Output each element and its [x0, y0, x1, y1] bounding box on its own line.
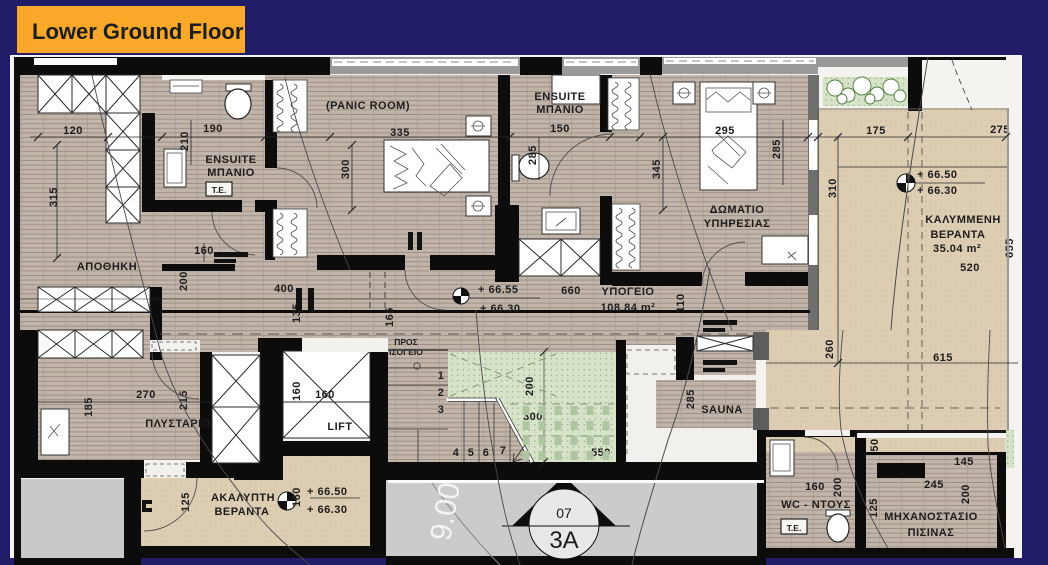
svg-text:T.E.: T.E.	[212, 185, 227, 195]
svg-text:145: 145	[954, 456, 974, 468]
svg-text:ΒΕΡΑΝΤΑ: ΒΕΡΑΝΤΑ	[214, 506, 269, 518]
svg-text:160: 160	[805, 481, 825, 493]
svg-text:ENSUITE: ENSUITE	[205, 154, 256, 166]
svg-text:ΙΣΟΓΕΙΟ: ΙΣΟΓΕΙΟ	[389, 347, 423, 357]
svg-text:285: 285	[527, 145, 539, 165]
svg-text:+ 66.30: + 66.30	[307, 504, 348, 516]
svg-text:ΔΩΜΑΤΙΟ: ΔΩΜΑΤΙΟ	[710, 204, 765, 216]
svg-text:+ 66.30: + 66.30	[480, 303, 521, 315]
svg-text:210: 210	[179, 131, 191, 151]
svg-text:ΑΠΟΘΗΚΗ: ΑΠΟΘΗΚΗ	[77, 261, 137, 273]
svg-text:+ 66.50: + 66.50	[917, 169, 958, 181]
svg-text:400: 400	[274, 283, 294, 295]
svg-text:270: 270	[136, 389, 156, 401]
svg-text:5: 5	[468, 447, 475, 459]
svg-text:ΥΠΗΡΕΣΙΑΣ: ΥΠΗΡΕΣΙΑΣ	[704, 218, 771, 230]
svg-text:160: 160	[291, 487, 303, 507]
svg-text:LIFT: LIFT	[327, 421, 352, 433]
svg-text:125: 125	[180, 492, 192, 512]
svg-text:ENSUITE: ENSUITE	[534, 91, 585, 103]
svg-text:110: 110	[675, 293, 687, 312]
svg-text:310: 310	[827, 178, 839, 198]
svg-text:300: 300	[340, 159, 352, 179]
svg-text:ΠΙΣΙΝΑΣ: ΠΙΣΙΝΑΣ	[908, 527, 955, 539]
svg-text:(PANIC ROOM): (PANIC ROOM)	[326, 100, 410, 112]
svg-text:160: 160	[194, 245, 214, 257]
svg-text:ΜΠΑΝΙΟ: ΜΠΑΝΙΟ	[536, 104, 584, 116]
svg-text:160: 160	[315, 389, 335, 401]
svg-text:ΠΛΥΣΤΑΡΙΟ: ΠΛΥΣΤΑΡΙΟ	[145, 418, 211, 430]
svg-text:35.04 m²: 35.04 m²	[933, 243, 981, 255]
svg-text:1: 1	[438, 370, 445, 382]
svg-text:108.84 m²: 108.84 m²	[601, 302, 656, 314]
svg-text:200: 200	[178, 271, 190, 291]
svg-text:ΒΕΡΑΝΤΑ: ΒΕΡΑΝΤΑ	[930, 229, 985, 241]
svg-text:175: 175	[866, 125, 886, 137]
svg-text:07: 07	[556, 505, 572, 521]
svg-text:3A: 3A	[549, 527, 578, 554]
svg-text:ΑΚΑΛΥΠΤΗ: ΑΚΑΛΥΠΤΗ	[211, 492, 275, 504]
svg-text:200: 200	[832, 477, 844, 497]
svg-text:275: 275	[990, 124, 1010, 136]
svg-text:200: 200	[960, 484, 972, 504]
svg-text:6: 6	[483, 447, 490, 459]
svg-text:615: 615	[933, 352, 953, 364]
svg-text:295: 295	[715, 125, 735, 137]
svg-text:2: 2	[438, 387, 445, 399]
svg-text:120: 120	[63, 125, 83, 137]
svg-text:4: 4	[453, 447, 460, 459]
svg-text:655: 655	[1004, 238, 1016, 258]
svg-text:3: 3	[438, 404, 445, 416]
svg-text:160: 160	[291, 381, 303, 401]
svg-text:190: 190	[203, 123, 223, 135]
svg-text:SAUNA: SAUNA	[701, 404, 743, 416]
svg-text:245: 245	[924, 479, 944, 491]
svg-text:50: 50	[869, 438, 881, 451]
svg-text:520: 520	[960, 262, 980, 274]
svg-text:185: 185	[83, 397, 95, 417]
svg-text:345: 345	[651, 159, 663, 179]
svg-text:7: 7	[500, 445, 507, 457]
svg-text:ΚΑΛΥΜΜΕΝΗ: ΚΑΛΥΜΜΕΝΗ	[925, 214, 1001, 226]
svg-text:ΠΡΟΣ: ΠΡΟΣ	[394, 337, 418, 347]
svg-text:ΜΠΑΝΙΟ: ΜΠΑΝΙΟ	[207, 167, 255, 179]
svg-text:T.E.: T.E.	[787, 523, 802, 533]
svg-text:165: 165	[384, 307, 396, 327]
svg-text:315: 315	[48, 187, 60, 207]
svg-text:WC - ΝΤΟΥΣ: WC - ΝΤΟΥΣ	[781, 499, 851, 511]
svg-text:285: 285	[685, 389, 697, 409]
svg-text:ΜΗΧΑΝΟΣΤΑΣΙΟ: ΜΗΧΑΝΟΣΤΑΣΙΟ	[884, 511, 978, 523]
svg-text:+ 66.30: + 66.30	[917, 185, 958, 197]
svg-text:260: 260	[824, 339, 836, 359]
svg-text:+ 66.55: + 66.55	[478, 284, 519, 296]
svg-text:335: 335	[390, 127, 410, 139]
svg-text:Lower Ground Floor: Lower Ground Floor	[32, 19, 244, 44]
svg-text:ΥΠΟΓΕΙΟ: ΥΠΟΓΕΙΟ	[602, 286, 655, 298]
svg-text:660: 660	[561, 285, 581, 297]
svg-text:+ 66.50: + 66.50	[307, 486, 348, 498]
svg-text:150: 150	[550, 123, 570, 135]
svg-text:285: 285	[771, 139, 783, 159]
